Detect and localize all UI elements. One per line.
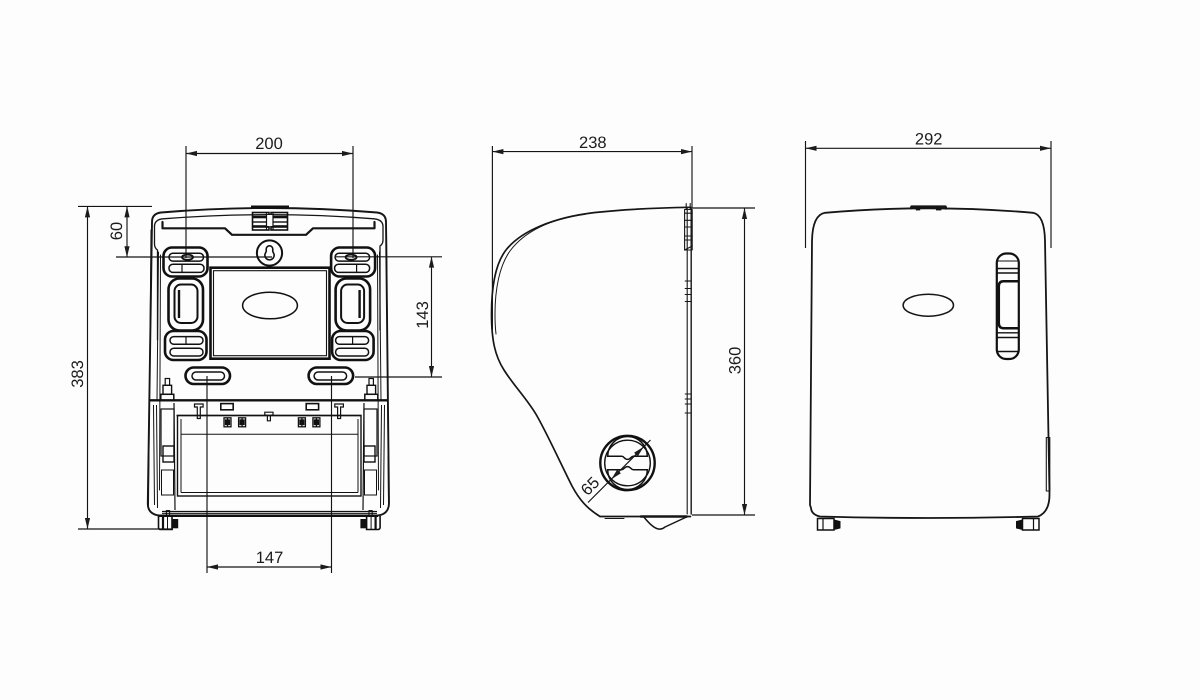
svg-text:147: 147 xyxy=(256,549,284,567)
svg-text:383: 383 xyxy=(69,360,87,388)
svg-text:200: 200 xyxy=(255,135,283,153)
svg-text:60: 60 xyxy=(108,222,126,240)
svg-text:360: 360 xyxy=(727,347,745,375)
svg-text:143: 143 xyxy=(414,301,432,329)
svg-text:238: 238 xyxy=(579,134,607,152)
svg-text:292: 292 xyxy=(915,131,943,149)
